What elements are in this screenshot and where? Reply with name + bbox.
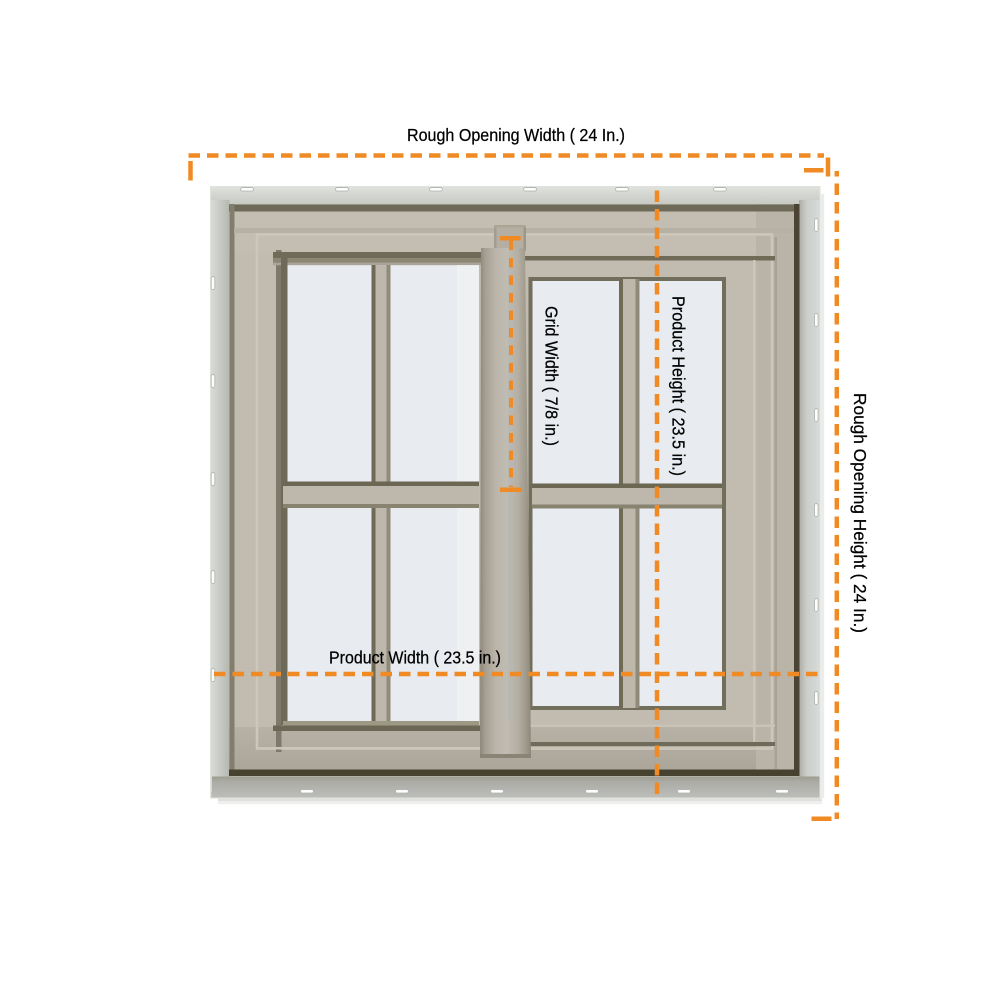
svg-text:Rough Opening Width ( 24 In.): Rough Opening Width ( 24 In.)	[407, 125, 625, 145]
svg-text:Product Height ( 23.5 in.): Product Height ( 23.5 in.)	[669, 296, 689, 476]
svg-text:Grid Width ( 7/8 in.): Grid Width ( 7/8 in.)	[542, 306, 562, 446]
svg-text:Product Width ( 23.5 in.): Product Width ( 23.5 in.)	[329, 648, 501, 668]
svg-text:Rough Opening Height ( 24 In.): Rough Opening Height ( 24 In.)	[850, 393, 870, 633]
